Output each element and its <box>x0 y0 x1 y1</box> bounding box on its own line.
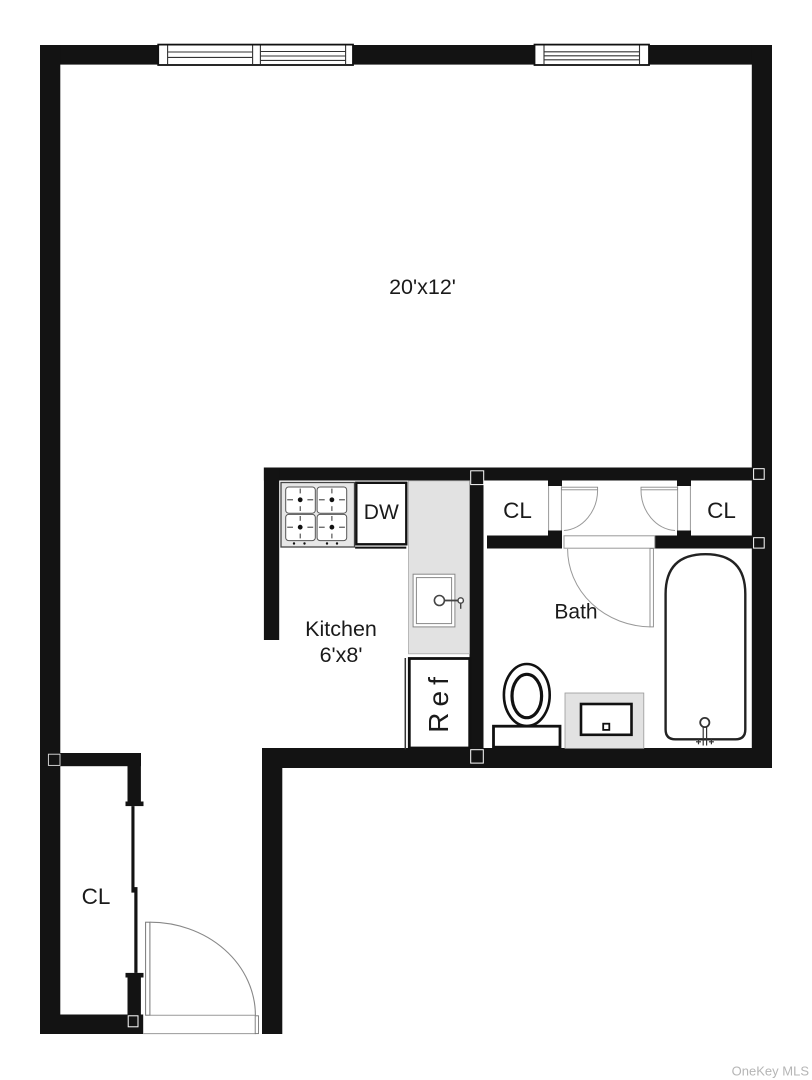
svg-text:CL: CL <box>82 884 111 909</box>
svg-text:CL: CL <box>503 498 532 523</box>
svg-text:Kitchen: Kitchen <box>305 617 377 641</box>
svg-text:CL: CL <box>707 498 736 523</box>
svg-text:DW: DW <box>364 501 399 524</box>
svg-text:20'x12': 20'x12' <box>389 275 456 299</box>
svg-text:6'x8': 6'x8' <box>320 643 363 667</box>
svg-text:Ref: Ref <box>423 671 454 733</box>
svg-text:Bath: Bath <box>554 601 597 624</box>
svg-text:OneKey MLS: OneKey MLS <box>732 1064 810 1079</box>
